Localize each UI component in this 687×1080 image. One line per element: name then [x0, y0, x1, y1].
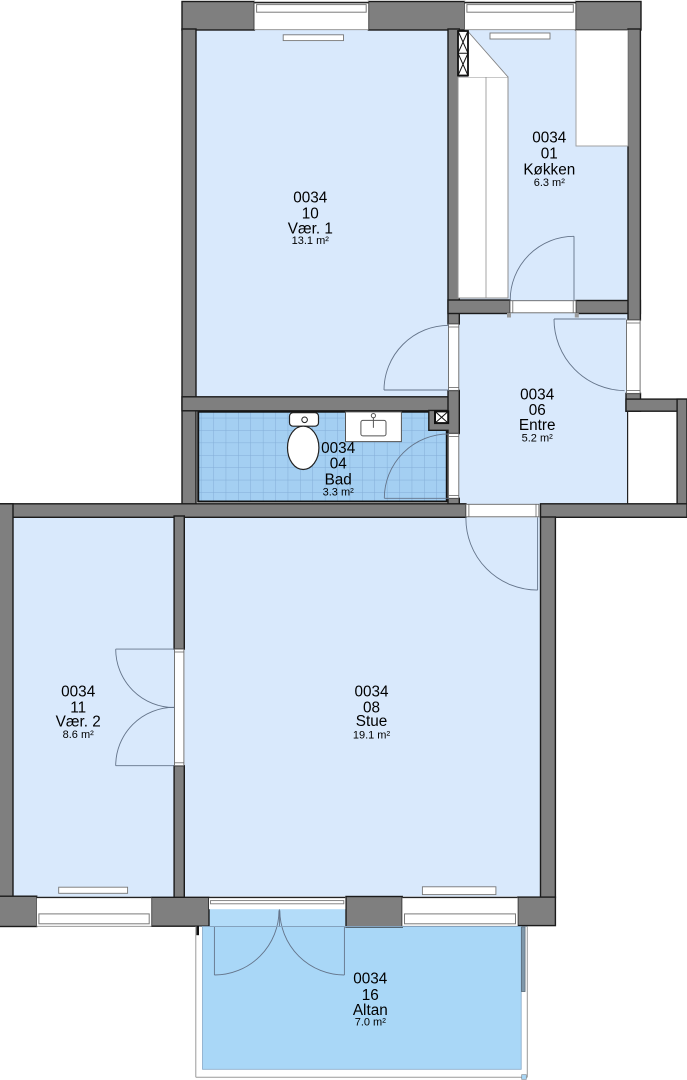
svg-text:04: 04: [330, 455, 348, 472]
svg-text:5.2 m²: 5.2 m²: [522, 432, 554, 444]
svg-text:0034: 0034: [520, 386, 555, 403]
svg-text:0034: 0034: [354, 684, 389, 701]
svg-text:0034: 0034: [353, 971, 388, 988]
svg-text:8.6 m²: 8.6 m²: [63, 729, 95, 741]
svg-text:Stue: Stue: [356, 713, 387, 730]
svg-text:3.3 m²: 3.3 m²: [323, 487, 355, 499]
svg-text:7.0 m²: 7.0 m²: [355, 1016, 387, 1028]
svg-text:13.1 m²: 13.1 m²: [292, 235, 330, 247]
svg-text:0034: 0034: [293, 189, 328, 206]
svg-text:6.3 m²: 6.3 m²: [534, 177, 566, 189]
svg-text:0034: 0034: [532, 130, 567, 147]
svg-text:Vær. 2: Vær. 2: [56, 713, 101, 730]
svg-text:01: 01: [541, 146, 558, 163]
svg-text:0034: 0034: [61, 684, 96, 701]
svg-text:19.1 m²: 19.1 m²: [353, 729, 391, 741]
